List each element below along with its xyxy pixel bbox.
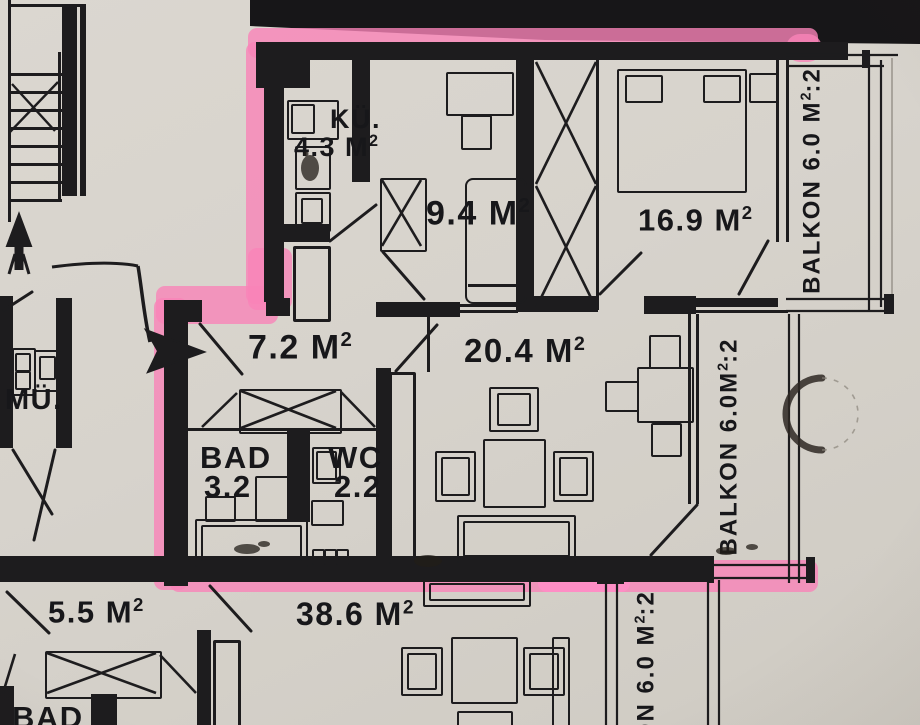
- door-lower-hall: [7, 592, 49, 633]
- armchair-left-inner: [441, 457, 470, 496]
- wall-closet-bottom: [516, 296, 598, 312]
- lower-chair-bottom: [457, 711, 513, 725]
- label-wc-area: 2.2: [334, 471, 382, 502]
- wall-balcony-slab: [694, 298, 778, 307]
- wc-vent-3: [336, 549, 349, 565]
- desk: [446, 72, 514, 116]
- lower-shelf: [552, 637, 570, 725]
- line-hall-living-divider: [427, 316, 430, 372]
- wall-stairwell-bar2: [80, 4, 86, 196]
- dining-chair-top: [649, 335, 681, 369]
- window-line-bedroom-b: [786, 58, 789, 242]
- wall-apartment-left: [164, 316, 188, 586]
- kitchen-fridge-inner: [301, 198, 323, 224]
- line-closet-right: [596, 58, 599, 310]
- door-living: [396, 325, 437, 371]
- label-balcony-bottom: BALKON 6.0 M2:2: [634, 579, 659, 725]
- line-bedroom-small-bottom: [458, 304, 520, 307]
- door-balcony-bedroom: [739, 241, 768, 294]
- coffee-table: [483, 439, 546, 508]
- label-bedroom-large-area: 16.9 M2: [638, 204, 752, 235]
- dining-table: [637, 367, 694, 423]
- label-lower-bath: BAD: [12, 702, 84, 725]
- lower-table: [451, 637, 518, 704]
- stairs: [8, 73, 62, 207]
- kitchen-sink: [291, 104, 315, 134]
- waste-bin-inner: [39, 356, 56, 380]
- armchair-right-inner: [559, 457, 588, 496]
- door-balcony-living: [651, 505, 697, 555]
- door-bedroom-small: [383, 252, 424, 299]
- label-lower-living-area: 38.6 M2: [296, 598, 414, 630]
- dining-chair-bottom: [651, 423, 682, 457]
- lower-armchair-left-inner: [407, 653, 437, 690]
- line-living-top: [430, 310, 518, 313]
- label-balcony-middle: BALKON 6.0M2:2: [717, 322, 742, 572]
- wall-top: [256, 42, 848, 60]
- lower-wardrobe: [45, 651, 162, 699]
- label-kitchen: KÜ.: [330, 106, 381, 133]
- line-balcony-top: [696, 310, 788, 313]
- door-lower-living: [210, 586, 251, 631]
- wall-lower-divider: [197, 630, 211, 725]
- bath-washbasin: [255, 476, 291, 522]
- hall-wardrobe: [239, 389, 342, 434]
- label-bath-area: 3.2: [204, 471, 252, 502]
- label-balcony-top: BALKON 6.0 M2:2: [800, 56, 825, 306]
- pillow-right: [703, 75, 741, 103]
- bathtub-inner: [201, 525, 302, 561]
- wall-bottom: [0, 556, 714, 582]
- floorplan-photo: KÜ. 4.3 M2 9.4 M2 16.9 M2 7.2 M2 20.4 M2…: [0, 0, 920, 725]
- wall-bedroom-large-bottom: [644, 296, 696, 314]
- sofa-inner: [463, 521, 570, 557]
- door-entrance: [200, 324, 242, 374]
- door-waste-b: [34, 450, 55, 540]
- label-bedroom-small-area: 9.4 M2: [426, 196, 530, 230]
- desk-chair: [461, 115, 492, 150]
- lower-cupboard: [213, 640, 241, 725]
- lower-sofa-inner: [429, 583, 525, 601]
- armchair-top-inner: [497, 393, 531, 426]
- waste-chute-a: [15, 353, 31, 372]
- corridor-cupboard: [293, 246, 331, 322]
- nightstand: [749, 73, 779, 103]
- door-kitchen: [330, 205, 376, 241]
- wardrobe-bedroom-small: [380, 178, 427, 252]
- coffee-stain: [786, 378, 858, 450]
- up-arrow-icon: [7, 214, 31, 274]
- label-kitchen-area: 4.3 M2: [294, 133, 378, 161]
- door-bedroom-large: [600, 253, 641, 294]
- window-line-living-b: [696, 314, 699, 504]
- line-stair-top: [8, 4, 80, 7]
- line-paper-edge: [891, 58, 893, 308]
- label-waste-room: MÜ.: [5, 386, 63, 415]
- wall-entry-right: [266, 298, 290, 316]
- door-waste-a: [13, 450, 52, 514]
- wall-kitchen-left: [264, 48, 284, 302]
- bed-small-footline: [468, 284, 520, 287]
- wall-stairwell-bar1: [62, 4, 77, 196]
- pillow-left: [625, 75, 663, 103]
- label-living-area: 20.4 M2: [464, 334, 585, 367]
- label-lower-hallway-area: 5.5 M2: [48, 596, 143, 627]
- living-cupboard: [389, 372, 416, 564]
- label-hallway-area: 7.2 M2: [248, 330, 352, 364]
- dining-chair-left: [605, 381, 639, 412]
